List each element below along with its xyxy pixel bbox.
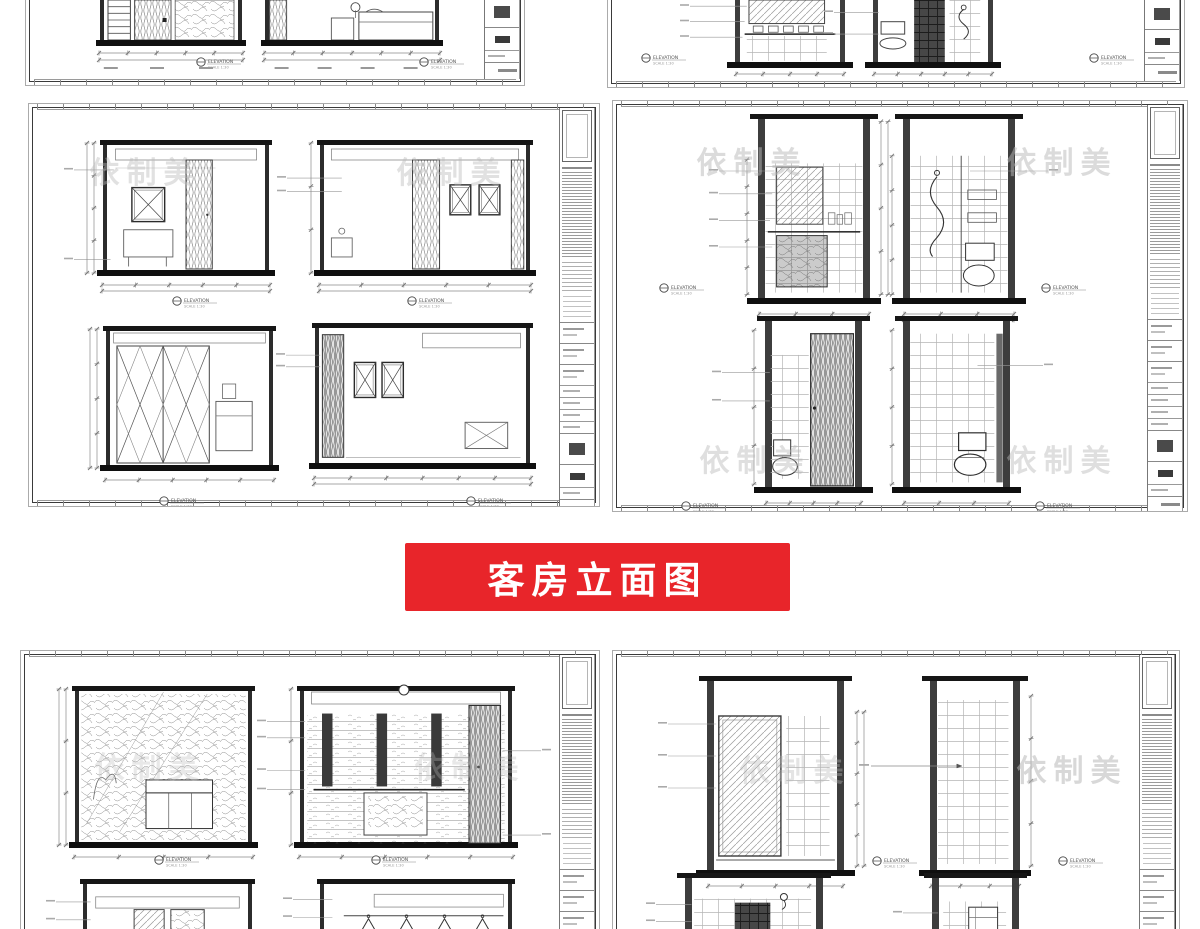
elevation-mirrortall	[658, 676, 867, 889]
elevation-tvstone	[257, 685, 551, 860]
elevation-pshelf	[96, 0, 246, 69]
sheet-mid-left: ELEVATIONSCALE 1:30ELEVATIONSCALE 1:30EL…	[28, 103, 600, 507]
elevation-lounge	[57, 686, 259, 860]
elevation-marker: ELEVATIONSCALE 1:30	[1042, 284, 1086, 296]
elevation-marker: ELEVATIONSCALE 1:30	[155, 856, 199, 868]
svg-text:SCALE 1:30: SCALE 1:30	[653, 61, 674, 65]
svg-text:SCALE 1:30: SCALE 1:30	[1101, 61, 1122, 65]
svg-text:SCALE 1:30: SCALE 1:30	[478, 504, 499, 507]
elevation-marker: ELEVATIONSCALE 1:30	[1090, 54, 1134, 66]
elevation-marker: ELEVATIONSCALE 1:30	[160, 497, 204, 507]
elevation-wooddoor	[712, 316, 873, 506]
page: 客房立面图 ELEVATIONSCALE 1:30ELEVATIONSCALE …	[0, 0, 1200, 929]
elevation-bedtv	[64, 140, 275, 294]
elevation-artwall	[276, 323, 536, 487]
svg-text:SCALE 1:30: SCALE 1:30	[671, 291, 692, 295]
elevation-marker: ELEVATIONSCALE 1:30	[682, 502, 726, 512]
sheet-drawing-area: ELEVATIONSCALE 1:30ELEVATIONSCALE 1:30	[21, 651, 600, 929]
elevation-bedart	[277, 140, 536, 294]
elevation-marker: ELEVATIONSCALE 1:30	[1036, 502, 1080, 512]
svg-text:SCALE 1:30: SCALE 1:30	[383, 863, 404, 867]
elevation-wcsmall	[893, 873, 1027, 929]
svg-text:SCALE 1:30: SCALE 1:30	[171, 504, 192, 507]
elevation-marker: ELEVATIONSCALE 1:30	[1059, 857, 1103, 869]
sheet-drawing-area: ELEVATIONSCALE 1:30ELEVATIONSCALE 1:30	[613, 651, 1180, 929]
sheet-drawing-area: ELEVATIONSCALE 1:30ELEVATIONSCALE 1:30EL…	[613, 101, 1188, 512]
sheet-drawing-area: ELEVATIONSCALE 1:30ELEVATIONSCALE 1:30EL…	[29, 104, 600, 507]
elevation-wardrobe	[88, 326, 280, 483]
elevation-vanity	[709, 114, 891, 317]
elevation-shower	[890, 114, 1059, 323]
svg-text:SCALE 1:30: SCALE 1:30	[419, 304, 440, 308]
sheet-mid-right: ELEVATIONSCALE 1:30ELEVATIONSCALE 1:30EL…	[612, 100, 1188, 512]
section-title-banner: 客房立面图	[405, 543, 790, 611]
svg-text:SCALE 1:30: SCALE 1:30	[208, 65, 229, 69]
svg-text:SCALE 1:30: SCALE 1:30	[693, 509, 714, 512]
svg-text:SCALE 1:30: SCALE 1:30	[184, 304, 205, 308]
svg-text:SCALE 1:30: SCALE 1:30	[884, 864, 905, 868]
elevation-hangers	[283, 879, 515, 929]
sheet-bottom-right: ELEVATIONSCALE 1:30ELEVATIONSCALE 1:30	[612, 650, 1180, 929]
elevation-mirrorcab	[46, 879, 255, 929]
svg-text:SCALE 1:30: SCALE 1:30	[431, 65, 452, 69]
banner-label: 客房立面图	[488, 550, 708, 604]
elevation-pbed	[261, 0, 443, 69]
svg-text:SCALE 1:30: SCALE 1:30	[1070, 864, 1091, 868]
elevation-marker: ELEVATIONSCALE 1:30	[408, 297, 452, 309]
sheet-drawing-area: ELEVATIONSCALE 1:30ELEVATIONSCALE 1:30	[26, 0, 525, 86]
svg-text:SCALE 1:30: SCALE 1:30	[1047, 509, 1068, 512]
elevation-marker: ELEVATIONSCALE 1:30	[467, 497, 511, 507]
elevation-marker: ELEVATIONSCALE 1:30	[873, 857, 917, 869]
elevation-showerdark	[646, 873, 831, 929]
elevation-tiletall	[859, 676, 1034, 889]
sheet-top-right: ELEVATIONSCALE 1:30ELEVATIONSCALE 1:30	[607, 0, 1185, 88]
elevation-marker: ELEVATIONSCALE 1:30	[660, 284, 704, 296]
elevation-tilewc	[890, 316, 1054, 506]
svg-text:SCALE 1:30: SCALE 1:30	[1053, 291, 1074, 295]
elevation-marker: ELEVATIONSCALE 1:30	[173, 297, 217, 309]
svg-text:SCALE 1:30: SCALE 1:30	[166, 863, 187, 867]
elevation-marker: ELEVATIONSCALE 1:30	[372, 856, 416, 868]
sheet-drawing-area: ELEVATIONSCALE 1:30ELEVATIONSCALE 1:30	[608, 0, 1185, 88]
elevation-marker: ELEVATIONSCALE 1:30	[642, 54, 686, 66]
sheet-top-left: ELEVATIONSCALE 1:30ELEVATIONSCALE 1:30	[25, 0, 525, 86]
elevation-marker: ELEVATIONSCALE 1:30	[420, 58, 464, 70]
sheet-bottom-left: ELEVATIONSCALE 1:30ELEVATIONSCALE 1:30	[20, 650, 600, 929]
